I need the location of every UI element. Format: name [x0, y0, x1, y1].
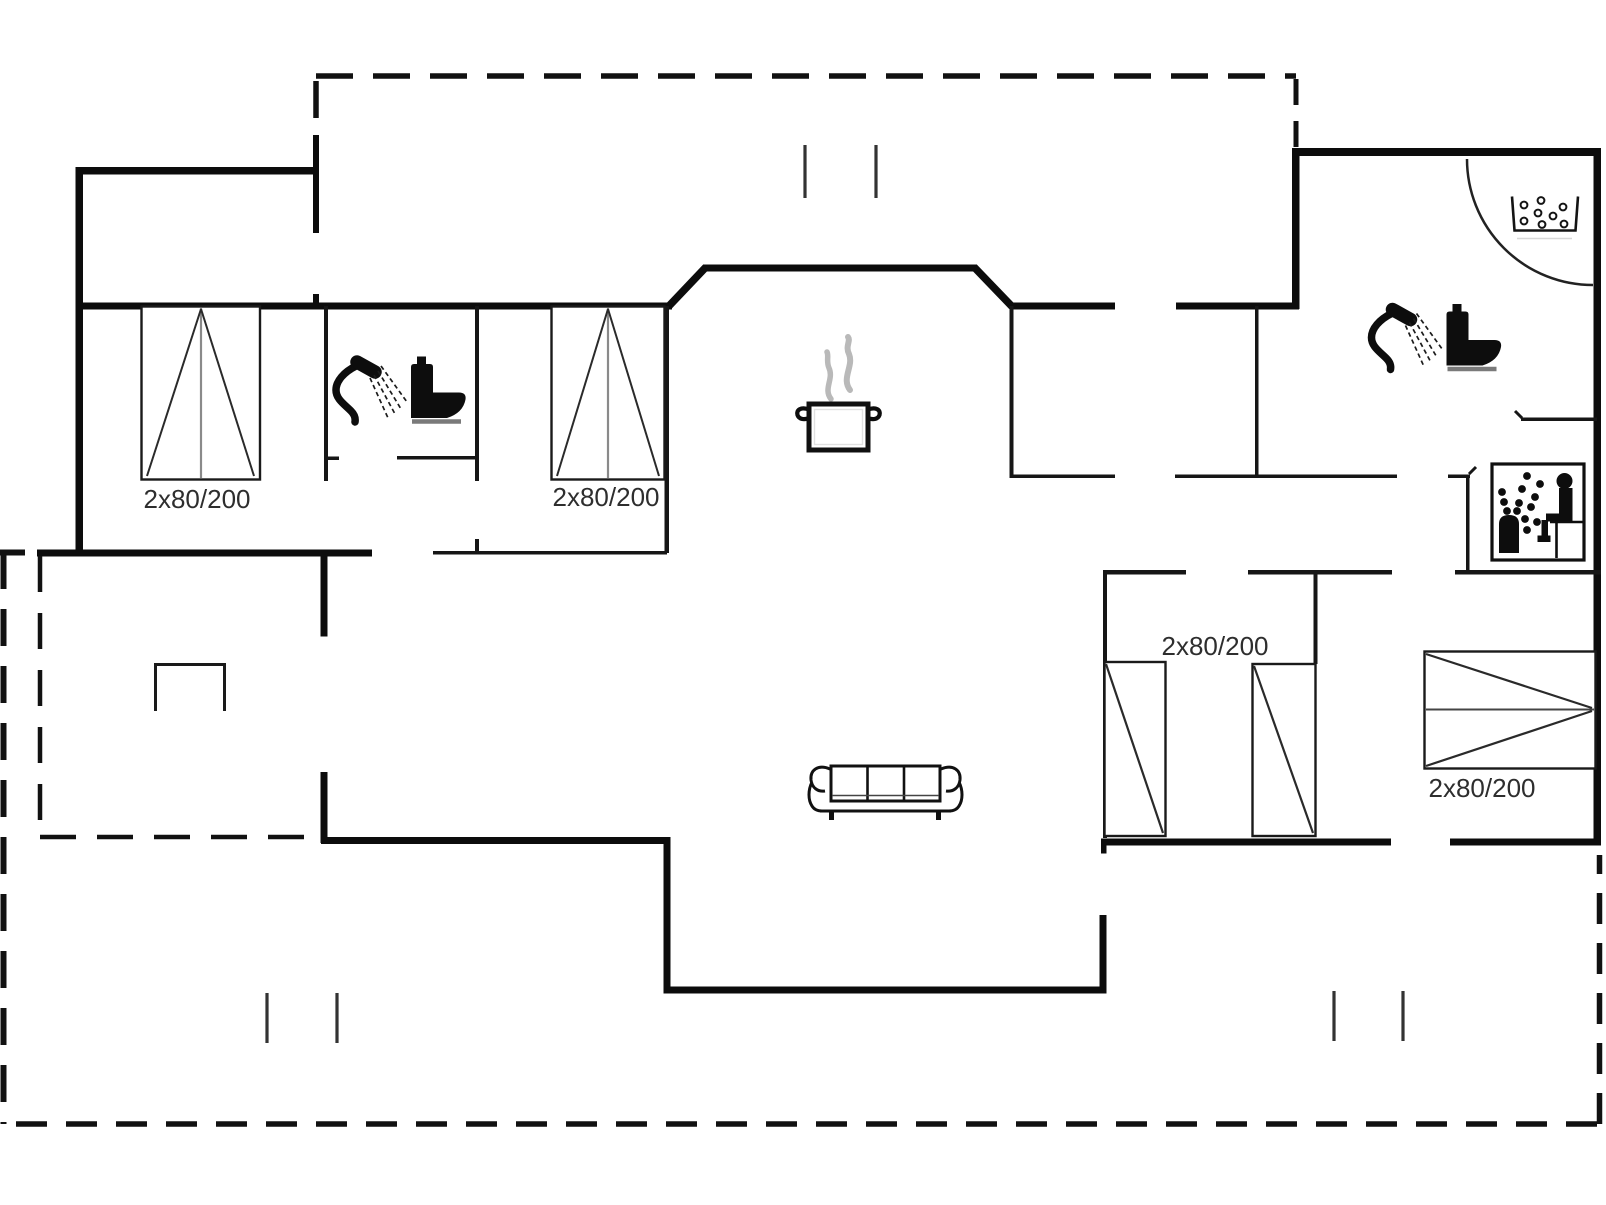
svg-text:2x80/200: 2x80/200 [1429, 773, 1536, 803]
svg-text:2x80/200: 2x80/200 [553, 482, 660, 512]
svg-text:2x80/200: 2x80/200 [144, 484, 251, 514]
svg-text:2x80/200: 2x80/200 [1162, 631, 1269, 661]
